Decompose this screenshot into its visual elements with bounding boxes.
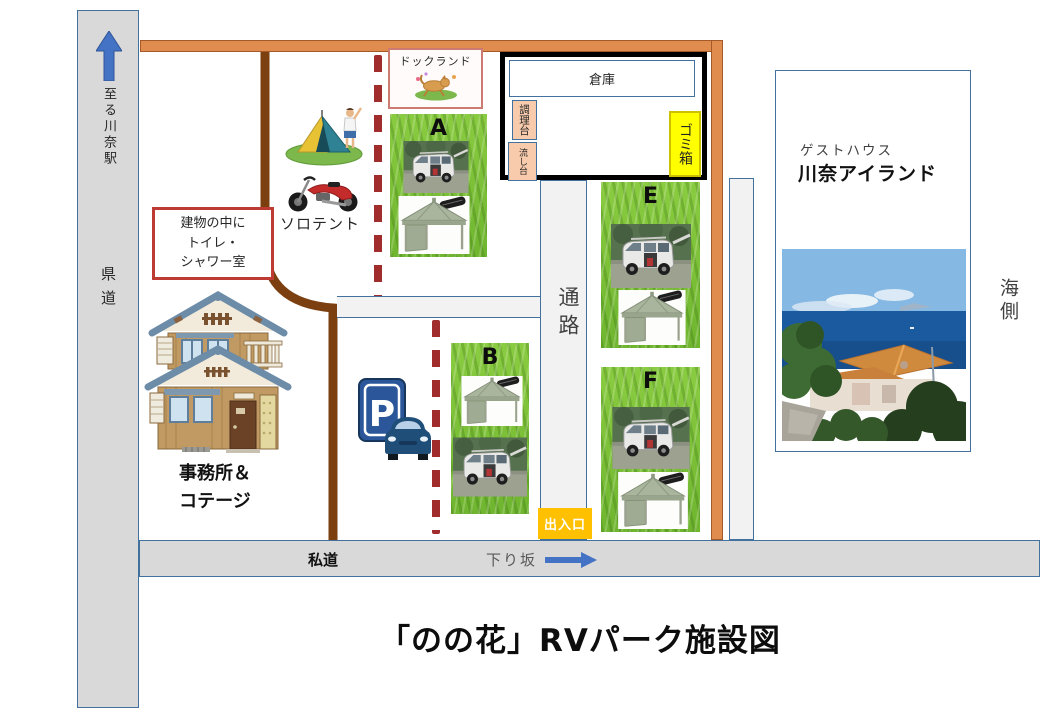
guesthouse-photo xyxy=(782,249,966,441)
entrance-badge: 出入口 xyxy=(538,508,592,539)
canopy-photo xyxy=(461,376,523,426)
van-photo xyxy=(453,437,527,497)
van-photo xyxy=(611,407,691,469)
map-title: 「のの花」RVパーク施設図 xyxy=(330,615,830,660)
site-b-label: B xyxy=(451,345,529,370)
right-boundary xyxy=(711,40,723,540)
passage: 通路 xyxy=(540,180,587,540)
to-station-label: 至る川奈駅 xyxy=(99,87,118,167)
tent-icon xyxy=(282,100,370,168)
guesthouse-type-label: ゲストハウス xyxy=(800,139,893,159)
office-label-line2: コテージ xyxy=(150,488,280,516)
cooking-counter: 調理台 xyxy=(512,100,537,140)
dashed-boundary-upper xyxy=(374,55,382,298)
downhill-direction-arrow-icon xyxy=(545,552,597,568)
toilet-note-line1: 建物の中に xyxy=(180,214,245,234)
prefectural-road-label: 県道 xyxy=(98,266,119,314)
right-path xyxy=(729,178,754,540)
office-label-line1: 事務所＆ xyxy=(150,460,280,488)
site-a-label: A xyxy=(390,116,487,141)
passage-label: 通路 xyxy=(553,286,583,342)
trash-box-label: ゴミ箱 xyxy=(675,123,695,165)
guesthouse-box: ゲストハウス 川奈アイランド xyxy=(775,70,971,452)
warehouse: 倉庫 xyxy=(509,60,695,97)
guesthouse-name: 川奈アイランド xyxy=(798,159,937,186)
private-road-label: 私道 xyxy=(308,549,338,570)
motorcycle-icon xyxy=(282,168,366,214)
downhill-label: 下り坂 xyxy=(486,549,537,570)
site-b: B xyxy=(451,343,529,514)
site-f: F xyxy=(601,367,700,532)
facility-building: 倉庫 調理台 流し台 ゴミ箱 xyxy=(500,52,707,180)
sink: 流し台 xyxy=(508,142,537,181)
solo-tent-label: ソロテント xyxy=(280,213,380,234)
canopy-photo xyxy=(617,472,689,529)
dog-land-label: ドックランド xyxy=(390,53,481,69)
canopy-photo xyxy=(398,196,470,254)
warehouse-label: 倉庫 xyxy=(589,69,615,88)
entrance-label: 出入口 xyxy=(544,514,586,533)
toilet-shower-note: 建物の中に トイレ・ シャワー室 xyxy=(152,207,274,280)
site-e-label: E xyxy=(601,184,700,209)
dashed-boundary-lower xyxy=(432,320,440,534)
site-f-label: F xyxy=(601,369,700,394)
connector-path xyxy=(337,296,540,318)
facility-map: 至る川奈駅 県道 ドックランド 倉庫 調理台 流し台 xyxy=(0,0,1040,720)
bottom-road: 私道 下り坂 xyxy=(139,540,1040,577)
site-e: E xyxy=(601,182,700,348)
van-photo xyxy=(611,224,691,288)
van-photo xyxy=(403,141,469,193)
site-a: A xyxy=(390,114,487,257)
prefectural-road: 至る川奈駅 県道 xyxy=(77,10,139,708)
cooking-counter-label: 調理台 xyxy=(517,104,532,136)
trash-box: ゴミ箱 xyxy=(669,111,701,177)
dog-icon xyxy=(411,71,461,101)
sea-side-label: 海側 xyxy=(995,278,1022,324)
dog-land-box: ドックランド xyxy=(388,48,483,109)
sink-label: 流し台 xyxy=(516,148,529,175)
canopy-photo xyxy=(617,290,687,345)
office-cottage-house-icon xyxy=(142,287,294,459)
north-arrow-icon xyxy=(96,31,122,81)
parking-sign-icon: P xyxy=(357,377,433,463)
toilet-note-line3: シャワー室 xyxy=(180,253,245,273)
toilet-note-line2: トイレ・ xyxy=(180,234,245,254)
office-cottage-label: 事務所＆ コテージ xyxy=(150,460,280,516)
